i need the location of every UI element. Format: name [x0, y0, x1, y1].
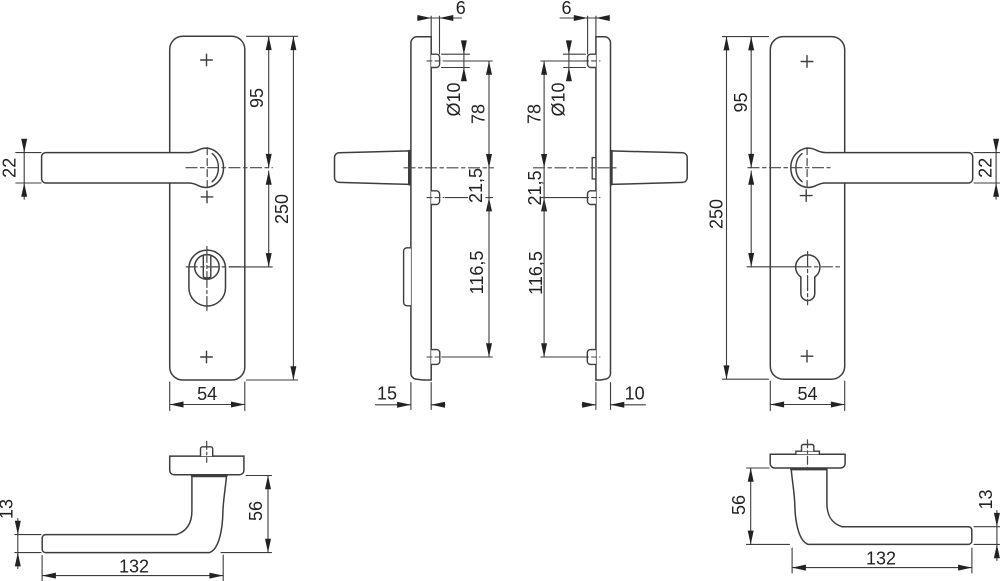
svg-text:13: 13 [0, 499, 17, 519]
svg-text:250: 250 [272, 194, 292, 224]
svg-text:95: 95 [247, 88, 267, 108]
svg-text:132: 132 [119, 557, 149, 577]
svg-text:54: 54 [797, 384, 817, 404]
svg-text:54: 54 [197, 384, 217, 404]
svg-text:6: 6 [561, 0, 571, 18]
svg-text:13: 13 [976, 489, 996, 509]
svg-text:15: 15 [377, 384, 397, 404]
svg-text:95: 95 [731, 92, 751, 112]
svg-text:78: 78 [468, 104, 488, 124]
svg-text:78: 78 [525, 104, 545, 124]
svg-text:132: 132 [866, 549, 896, 569]
svg-text:250: 250 [707, 199, 727, 229]
svg-text:10: 10 [625, 384, 645, 404]
svg-text:21,5: 21,5 [466, 168, 486, 203]
svg-text:22: 22 [0, 158, 20, 178]
svg-text:22: 22 [975, 158, 995, 178]
svg-text:56: 56 [729, 495, 749, 515]
svg-text:6: 6 [456, 0, 466, 18]
svg-text:116,5: 116,5 [526, 251, 546, 295]
svg-text:21,5: 21,5 [525, 170, 545, 205]
svg-text:56: 56 [246, 501, 266, 521]
svg-text:Ø10: Ø10 [548, 82, 568, 116]
svg-text:Ø10: Ø10 [444, 82, 464, 116]
svg-text:116,5: 116,5 [467, 251, 487, 295]
